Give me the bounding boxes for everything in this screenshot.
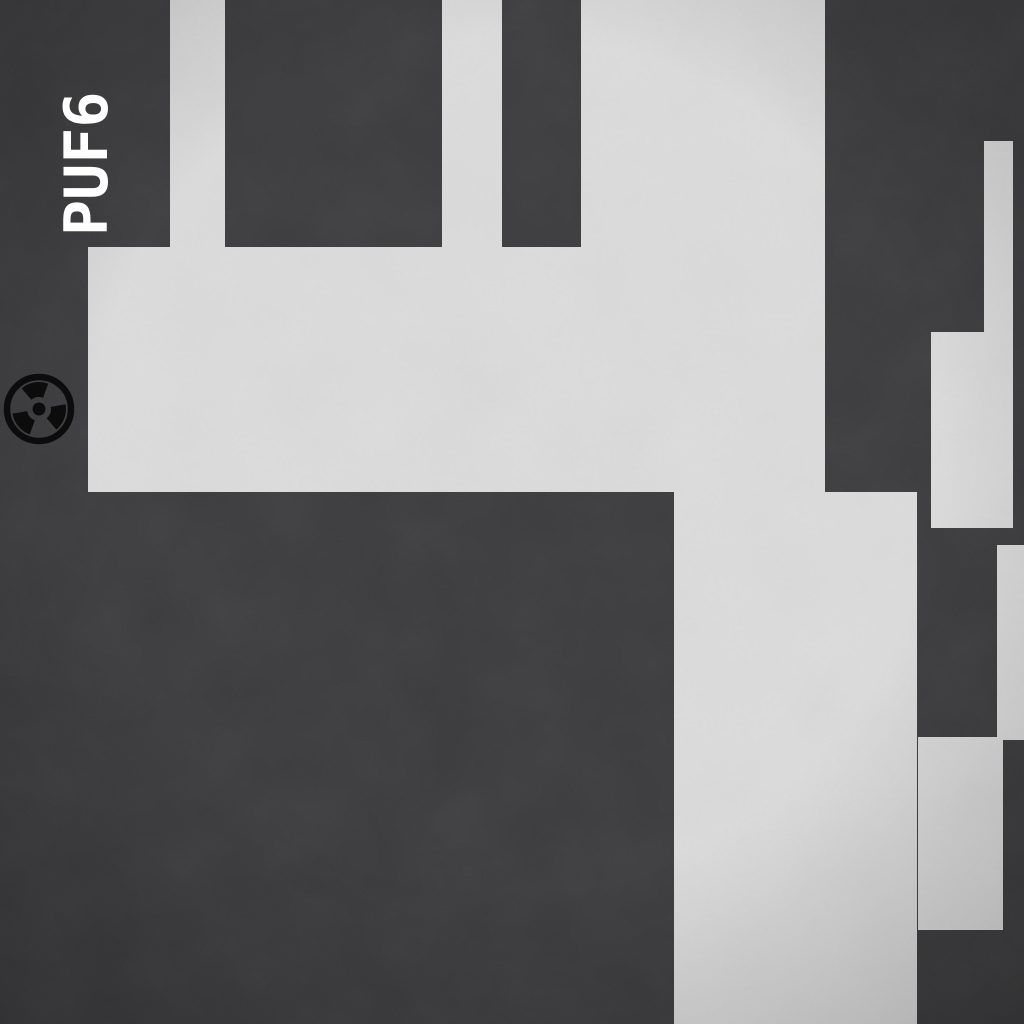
floor-region	[581, 0, 825, 247]
floor-region	[918, 737, 1003, 930]
floor-region	[984, 141, 1013, 332]
floor-region	[674, 492, 917, 1024]
map-view[interactable]: PUF6	[0, 0, 1024, 1024]
radiation-icon	[0, 369, 79, 449]
floor-region	[442, 0, 502, 247]
floor-region	[88, 247, 825, 492]
room-label: PUF6	[64, 86, 110, 236]
floor-region	[997, 545, 1024, 740]
floor-region	[931, 332, 1013, 528]
floor-region	[170, 0, 225, 247]
